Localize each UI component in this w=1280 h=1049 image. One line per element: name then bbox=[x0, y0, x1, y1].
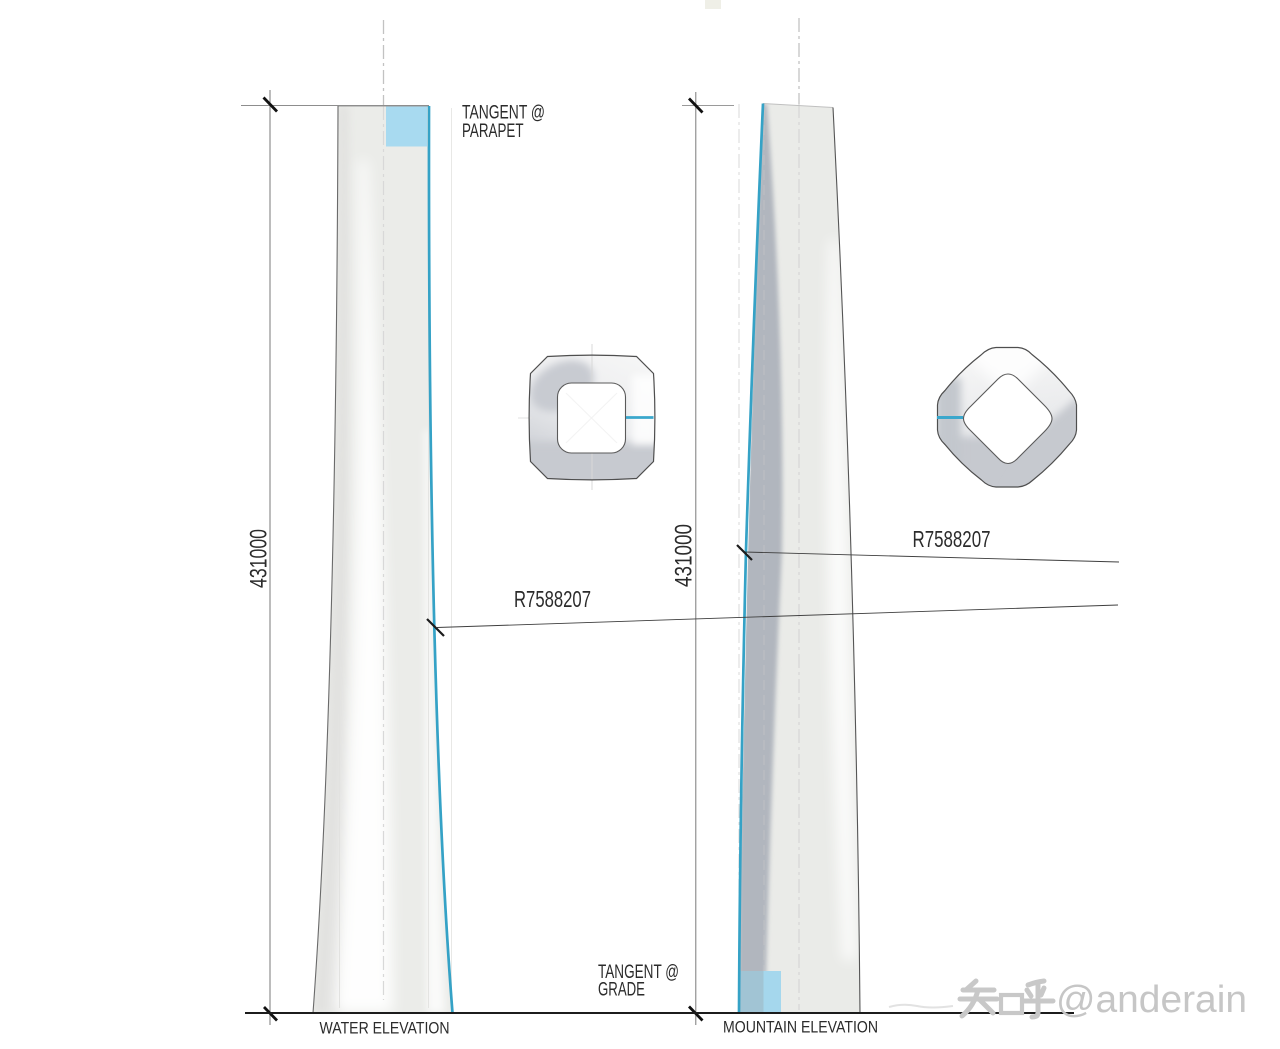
svg-text:WATER ELEVATION: WATER ELEVATION bbox=[320, 1020, 450, 1038]
svg-text:@anderain: @anderain bbox=[1056, 979, 1247, 1021]
svg-text:GRADE: GRADE bbox=[598, 980, 645, 1001]
svg-text:R7588207: R7588207 bbox=[913, 526, 991, 552]
svg-text:R7588207: R7588207 bbox=[514, 586, 591, 612]
svg-text:431000: 431000 bbox=[246, 529, 273, 588]
svg-text:431000: 431000 bbox=[671, 524, 698, 587]
svg-text:MOUNTAIN ELEVATION: MOUNTAIN ELEVATION bbox=[723, 1019, 878, 1037]
svg-text:PARAPET: PARAPET bbox=[462, 121, 524, 142]
